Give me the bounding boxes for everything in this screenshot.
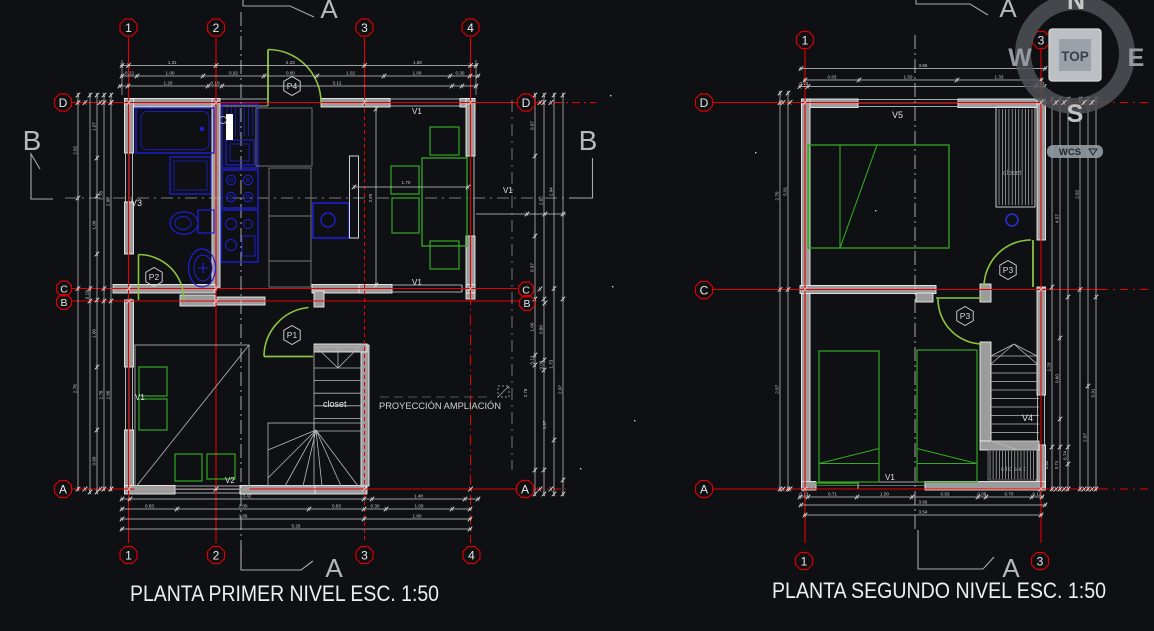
svg-text:1.60: 1.60 (413, 60, 422, 65)
svg-text:0.83: 0.83 (332, 503, 341, 508)
svg-text:1: 1 (802, 33, 809, 47)
svg-text:1.48: 1.48 (414, 493, 423, 498)
svg-text:0.74: 0.74 (1054, 460, 1059, 469)
svg-text:4: 4 (468, 548, 475, 562)
svg-text:A: A (521, 482, 529, 496)
svg-text:2.90: 2.90 (106, 197, 111, 206)
svg-text:C: C (522, 284, 530, 296)
svg-text:P2: P2 (149, 272, 160, 282)
svg-text:1.73: 1.73 (549, 359, 554, 368)
svg-text:V1: V1 (412, 278, 422, 287)
svg-text:0.08: 0.08 (539, 360, 544, 369)
svg-text:1.00: 1.00 (415, 503, 424, 508)
svg-text:3: 3 (1037, 554, 1044, 568)
svg-text:0.93: 0.93 (941, 491, 950, 496)
svg-text:closet: closet (1001, 466, 1027, 473)
svg-text:2.94: 2.94 (549, 187, 554, 196)
svg-text:0.19: 0.19 (85, 290, 90, 299)
svg-text:B: B (60, 297, 67, 309)
svg-text:2: 2 (213, 21, 220, 35)
svg-text:1.50: 1.50 (904, 74, 913, 79)
svg-text:A: A (700, 482, 708, 496)
svg-text:2.23: 2.23 (286, 60, 295, 65)
svg-text:5.26: 5.26 (292, 523, 301, 528)
svg-text:V1: V1 (885, 473, 895, 482)
svg-text:V4: V4 (1022, 413, 1033, 423)
svg-text:1.02: 1.02 (346, 70, 355, 75)
svg-text:S: S (1067, 100, 1084, 128)
svg-text:2.70: 2.70 (775, 191, 780, 200)
svg-text:2.87: 2.87 (775, 384, 780, 393)
svg-text:V1: V1 (412, 107, 422, 116)
svg-text:0.83: 0.83 (828, 74, 837, 79)
svg-text:closet: closet (323, 399, 347, 409)
svg-text:D: D (59, 96, 68, 110)
svg-text:PLANTA PRIMER NIVEL ESC. 1:50: PLANTA PRIMER NIVEL ESC. 1:50 (130, 581, 439, 606)
svg-text:V3: V3 (131, 198, 142, 208)
svg-text:D: D (522, 96, 531, 110)
svg-text:2.82: 2.82 (539, 196, 544, 205)
svg-text:B: B (523, 298, 530, 310)
svg-text:0.30: 0.30 (456, 70, 465, 75)
svg-text:0.89: 0.89 (92, 456, 97, 465)
svg-text:0.80: 0.80 (539, 325, 544, 334)
svg-text:1.00: 1.00 (92, 220, 97, 229)
svg-text:2.78: 2.78 (99, 390, 104, 399)
svg-text:2.78: 2.78 (99, 191, 104, 200)
svg-text:3: 3 (361, 548, 368, 562)
svg-text:2.78: 2.78 (73, 384, 78, 393)
svg-text:1.60: 1.60 (413, 513, 422, 518)
svg-text:1.97: 1.97 (542, 420, 547, 429)
svg-text:A: A (59, 482, 67, 496)
svg-text:C: C (60, 283, 68, 295)
svg-text:2.70: 2.70 (368, 193, 373, 202)
svg-text:2.78: 2.78 (523, 388, 528, 397)
svg-text:3.66: 3.66 (919, 63, 928, 68)
svg-text:1: 1 (801, 554, 808, 568)
svg-text:5.91: 5.91 (1091, 388, 1096, 397)
svg-text:1.00: 1.00 (166, 70, 175, 75)
svg-text:0.80: 0.80 (286, 70, 295, 75)
svg-text:0.60: 0.60 (1055, 374, 1060, 383)
svg-text:1.20: 1.20 (164, 80, 173, 85)
svg-text:0.13: 0.13 (800, 491, 809, 496)
svg-text:2.97: 2.97 (558, 385, 563, 394)
svg-text:3.12: 3.12 (333, 80, 342, 85)
svg-text:P3: P3 (960, 311, 971, 321)
svg-text:0.71: 0.71 (828, 491, 837, 496)
svg-text:PLANTA SEGUNDO NIVEL ESC. 1:50: PLANTA SEGUNDO NIVEL ESC. 1:50 (772, 578, 1106, 603)
svg-text:1.00: 1.00 (92, 329, 97, 338)
svg-text:2.97: 2.97 (1083, 433, 1088, 442)
svg-text:2.82: 2.82 (73, 145, 78, 154)
svg-text:1.07: 1.07 (92, 122, 97, 131)
svg-text:0.83: 0.83 (145, 503, 154, 508)
svg-text:0.70: 0.70 (1005, 491, 1014, 496)
svg-text:1.00: 1.00 (413, 70, 422, 75)
svg-text:A: A (999, 0, 1017, 23)
svg-text:V2: V2 (225, 476, 235, 485)
svg-text:closet: closet (1003, 170, 1021, 177)
svg-text:2: 2 (213, 548, 220, 562)
svg-text:3.66: 3.66 (239, 513, 248, 518)
svg-text:1.00: 1.00 (530, 322, 535, 331)
svg-text:B: B (23, 125, 42, 156)
svg-text:2.86: 2.86 (106, 390, 111, 399)
svg-text:4: 4 (467, 21, 474, 35)
svg-text:3.54: 3.54 (919, 509, 928, 514)
svg-text:P3: P3 (1003, 265, 1014, 275)
svg-text:C: C (700, 283, 709, 297)
svg-text:4.57: 4.57 (1055, 214, 1060, 223)
svg-text:0.12: 0.12 (1033, 491, 1042, 496)
svg-text:0.30: 0.30 (371, 503, 380, 508)
svg-text:0.74: 0.74 (1063, 451, 1068, 460)
svg-text:V1: V1 (135, 393, 145, 402)
svg-text:1.70: 1.70 (402, 180, 411, 185)
svg-text:0.08: 0.08 (978, 491, 987, 496)
svg-text:5.91: 5.91 (783, 186, 788, 195)
svg-text:WCS: WCS (1059, 147, 1081, 158)
svg-text:0.12: 0.12 (530, 355, 535, 364)
svg-text:1: 1 (125, 548, 132, 562)
svg-text:TOP: TOP (1061, 49, 1089, 64)
svg-text:W: W (1008, 44, 1032, 72)
svg-text:P1: P1 (287, 330, 298, 340)
svg-text:N: N (1067, 0, 1085, 15)
svg-text:V1: V1 (503, 186, 513, 195)
svg-text:1.00: 1.00 (880, 491, 889, 496)
svg-text:0.12: 0.12 (800, 81, 809, 86)
svg-text:3: 3 (361, 21, 368, 35)
svg-text:D: D (700, 96, 709, 110)
svg-text:3: 3 (1038, 33, 1045, 47)
svg-text:1: 1 (125, 21, 132, 35)
svg-text:2.00: 2.00 (239, 503, 248, 508)
svg-text:PROYECCIÓN AMPLIACIÓN: PROYECCIÓN AMPLIACIÓN (379, 401, 501, 411)
svg-text:0.97: 0.97 (530, 121, 535, 130)
svg-text:A: A (320, 0, 338, 24)
svg-text:V5: V5 (892, 110, 903, 120)
svg-text:E: E (1128, 44, 1145, 72)
svg-text:0.10: 0.10 (211, 80, 220, 85)
svg-text:A: A (325, 553, 343, 583)
svg-text:1.33: 1.33 (995, 74, 1004, 79)
svg-text:1.31: 1.31 (168, 60, 177, 65)
svg-text:0.92: 0.92 (229, 70, 238, 75)
svg-text:2.29: 2.29 (1047, 362, 1052, 371)
svg-text:0.22: 0.22 (125, 70, 134, 75)
svg-text:3.66: 3.66 (919, 499, 928, 504)
svg-text:3.42: 3.42 (243, 493, 252, 498)
svg-text:0.50: 0.50 (1044, 460, 1049, 469)
svg-text:B: B (579, 125, 598, 156)
svg-text:0.97: 0.97 (530, 263, 535, 272)
svg-text:2.82: 2.82 (1075, 189, 1080, 198)
